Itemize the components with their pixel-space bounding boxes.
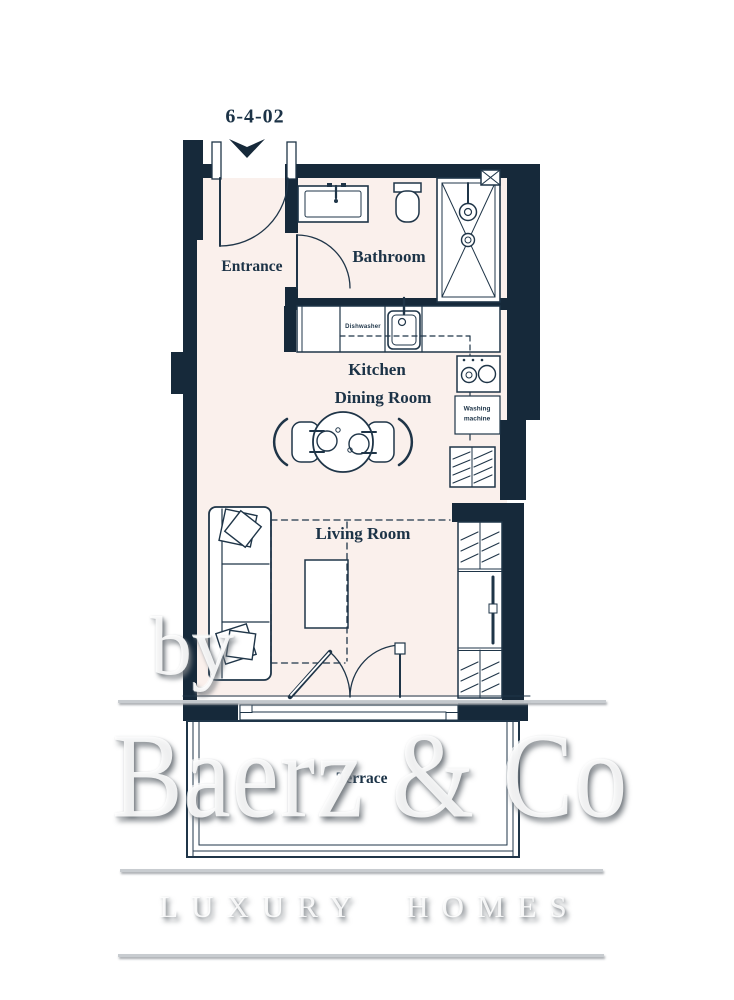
- hob-icon: [457, 356, 500, 392]
- living-room-label: Living Room: [316, 524, 411, 544]
- storage-cabinet-icon: [450, 447, 495, 487]
- dining-room-label: Dining Room: [335, 388, 432, 408]
- coffee-table-icon: [305, 560, 348, 628]
- toilet-icon: [394, 183, 421, 222]
- shower-icon: [437, 178, 500, 302]
- dishwasher-label: Dishwasher: [345, 324, 381, 330]
- entrance-label: Entrance: [221, 258, 282, 276]
- wall-left-pier: [171, 352, 183, 394]
- floor-plan-page: 6-4-02 Entrance Bathroom Kitchen Dining …: [0, 0, 734, 1000]
- unit-number: 6-4-02: [225, 106, 284, 129]
- entry-arrow-icon: [229, 139, 265, 158]
- wall-top: [293, 164, 540, 178]
- bathroom-label: Bathroom: [352, 247, 425, 267]
- wall-right-lower: [502, 522, 524, 704]
- floor-plan-graphic: [0, 0, 734, 1000]
- wall-balcony-right-block: [458, 703, 528, 721]
- washing-machine-line1: Washing: [464, 405, 491, 412]
- wall-balcony-left-block: [183, 703, 238, 721]
- wall-right-upper: [507, 164, 540, 420]
- sofa-icon: [209, 507, 271, 680]
- washing-machine-label: Washing machine: [464, 404, 491, 424]
- wall-right-mid: [500, 420, 526, 500]
- kitchen-label: Kitchen: [348, 360, 406, 380]
- wall-stub-wardrobe: [452, 503, 524, 522]
- vanity-sink-icon: [298, 183, 368, 222]
- terrace-label: Terrace: [336, 770, 387, 788]
- washing-machine-line2: machine: [464, 415, 490, 422]
- extractor-vent-icon: [481, 170, 500, 185]
- wall-left: [183, 140, 197, 700]
- wall-kitchen-stub: [284, 306, 296, 352]
